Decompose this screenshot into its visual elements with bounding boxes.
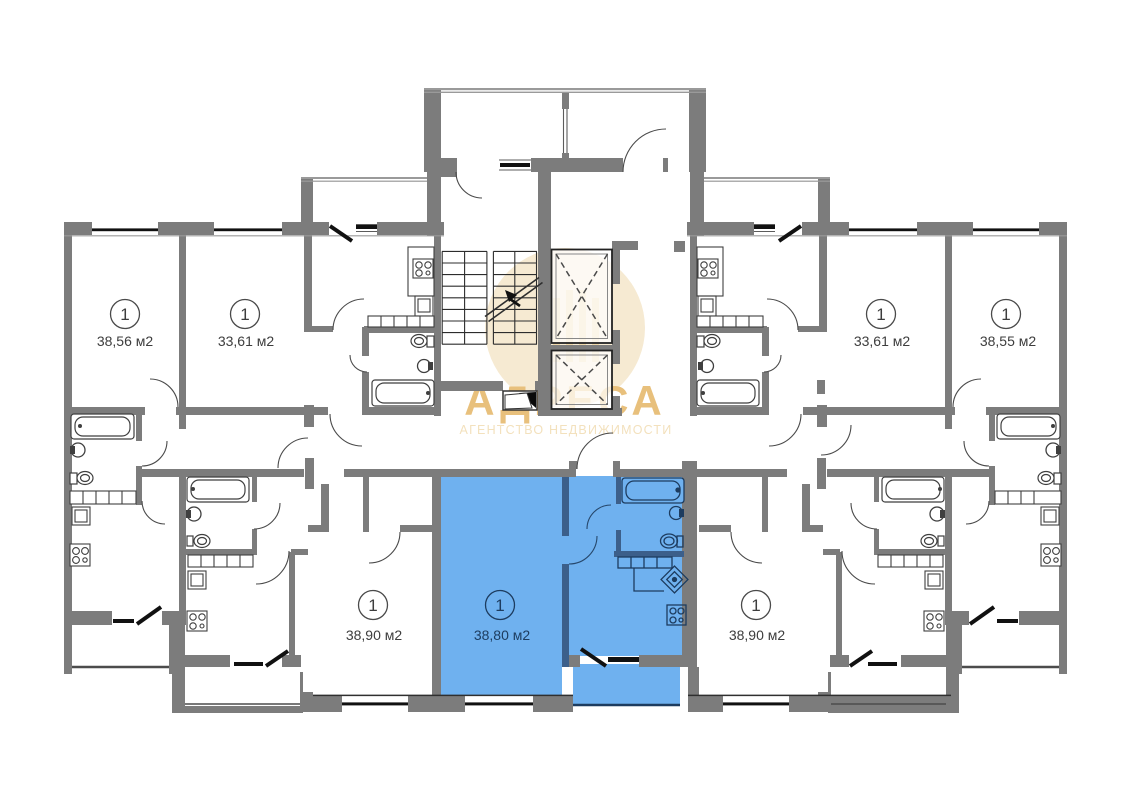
svg-text:1: 1 xyxy=(876,305,885,324)
svg-text:33,61 м2: 33,61 м2 xyxy=(218,333,275,349)
svg-text:1: 1 xyxy=(120,305,129,324)
svg-text:38,80 м2: 38,80 м2 xyxy=(474,627,531,643)
svg-text:1: 1 xyxy=(495,596,504,615)
svg-text:1: 1 xyxy=(368,596,377,615)
svg-text:1: 1 xyxy=(751,596,760,615)
svg-text:38,90 м2: 38,90 м2 xyxy=(729,627,786,643)
svg-text:38,56 м2: 38,56 м2 xyxy=(97,333,154,349)
svg-text:33,61 м2: 33,61 м2 xyxy=(854,333,911,349)
svg-text:1: 1 xyxy=(1001,305,1010,324)
svg-text:38,55 м2: 38,55 м2 xyxy=(980,333,1037,349)
svg-text:АГЕНТСТВО НЕДВИЖИМОСТИ: АГЕНТСТВО НЕДВИЖИМОСТИ xyxy=(460,423,673,437)
svg-text:38,90 м2: 38,90 м2 xyxy=(346,627,403,643)
svg-text:1: 1 xyxy=(240,305,249,324)
